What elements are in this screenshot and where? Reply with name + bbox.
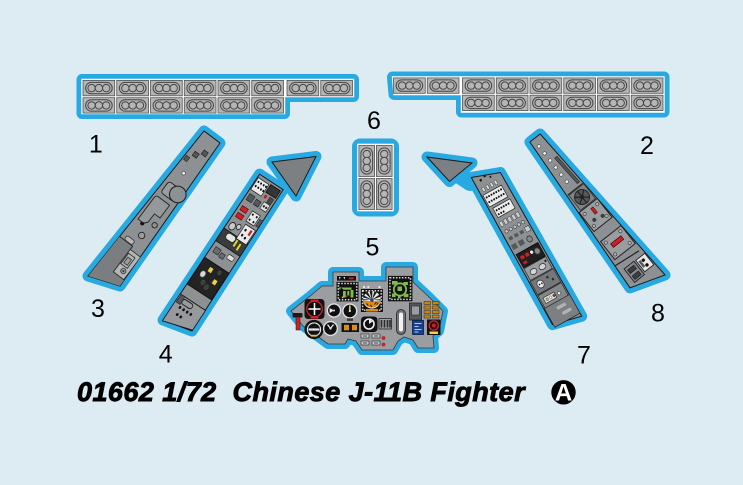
- svg-text:6: 6: [367, 107, 381, 135]
- svg-text:1: 1: [89, 131, 103, 159]
- svg-text:7: 7: [577, 342, 591, 370]
- svg-text:A: A: [555, 380, 572, 407]
- svg-text:2: 2: [640, 132, 654, 160]
- svg-text:3: 3: [91, 295, 105, 323]
- svg-text:01662 1/72 Chinese J-11B Figh: 01662 1/72 Chinese J-11B Fighter: [77, 377, 526, 407]
- svg-text:5: 5: [366, 234, 380, 262]
- svg-text:4: 4: [159, 341, 173, 369]
- svg-text:8: 8: [651, 300, 665, 328]
